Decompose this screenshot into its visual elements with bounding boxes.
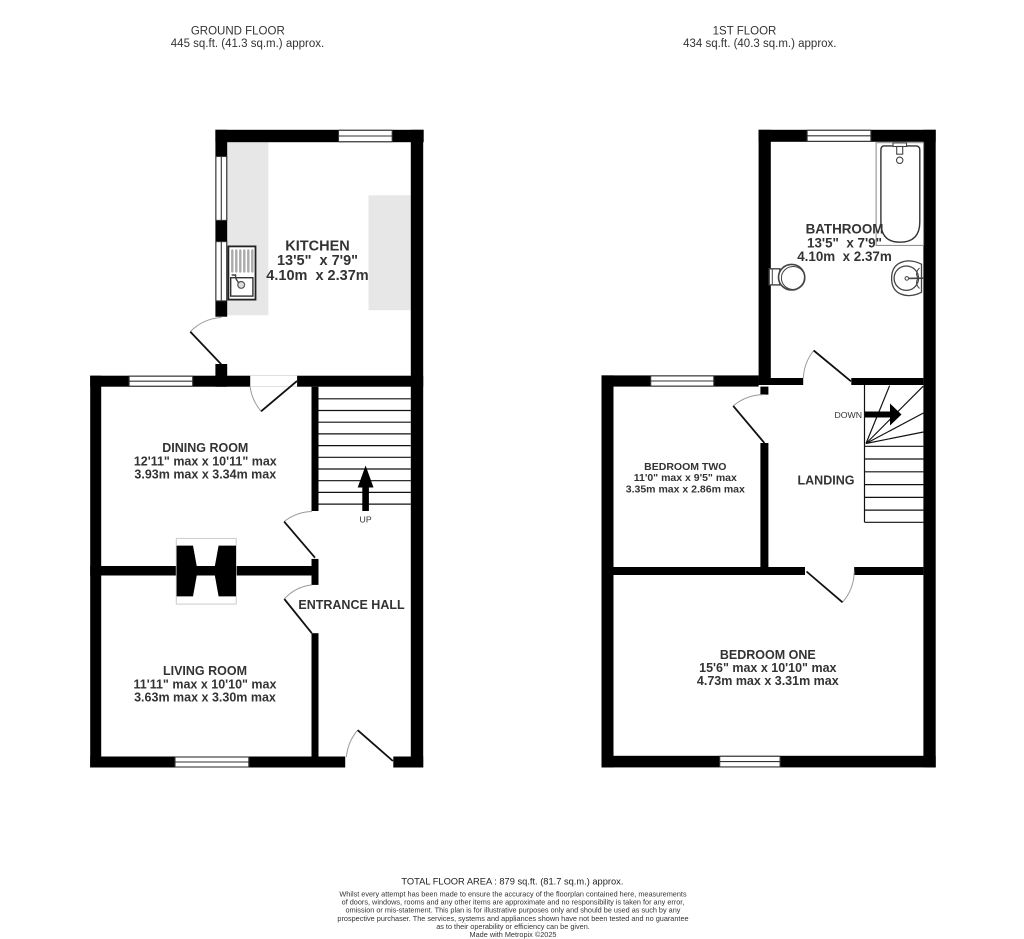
svg-text:3.35m max x 2.86m max: 3.35m max x 2.86m max: [626, 483, 745, 495]
svg-text:GROUND FLOOR: GROUND FLOOR: [191, 26, 285, 38]
svg-text:1ST FLOOR: 1ST FLOOR: [713, 26, 777, 38]
svg-text:TOTAL FLOOR AREA : 879 sq.ft.: TOTAL FLOOR AREA : 879 sq.ft. (81.7 sq.m…: [401, 876, 623, 886]
svg-text:LIVING ROOM: LIVING ROOM: [163, 664, 247, 678]
svg-text:11'11" max x 10'10" max: 11'11" max x 10'10" max: [134, 677, 277, 691]
svg-text:434 sq.ft. (40.3 sq.m.) approx: 434 sq.ft. (40.3 sq.m.) approx.: [683, 38, 836, 50]
svg-text:4.10m x 2.37m: 4.10m x 2.37m: [797, 249, 892, 264]
svg-text:UP: UP: [360, 515, 372, 525]
svg-text:3.63m max x 3.30m max: 3.63m max x 3.30m max: [134, 691, 276, 705]
svg-text:12'11" max x 10'11" max: 12'11" max x 10'11" max: [134, 454, 277, 468]
svg-text:ENTRANCE HALL: ENTRANCE HALL: [298, 598, 405, 612]
svg-text:445 sq.ft. (41.3 sq.m.) approx: 445 sq.ft. (41.3 sq.m.) approx.: [171, 38, 324, 50]
svg-text:Made with Metropix ©2025: Made with Metropix ©2025: [470, 930, 557, 939]
svg-text:3.93m max x 3.34m max: 3.93m max x 3.34m max: [134, 468, 276, 482]
svg-text:BEDROOM ONE: BEDROOM ONE: [720, 648, 816, 662]
svg-text:DOWN: DOWN: [834, 410, 862, 420]
svg-text:BEDROOM TWO: BEDROOM TWO: [644, 461, 726, 473]
svg-text:KITCHEN: KITCHEN: [285, 238, 349, 254]
svg-text:13'5" x 7'9": 13'5" x 7'9": [277, 253, 358, 269]
svg-text:DINING ROOM: DINING ROOM: [162, 441, 248, 455]
svg-text:4.10m x 2.37m: 4.10m x 2.37m: [266, 268, 368, 284]
svg-text:LANDING: LANDING: [798, 473, 855, 487]
svg-text:4.73m max x 3.31m max: 4.73m max x 3.31m max: [697, 674, 839, 688]
